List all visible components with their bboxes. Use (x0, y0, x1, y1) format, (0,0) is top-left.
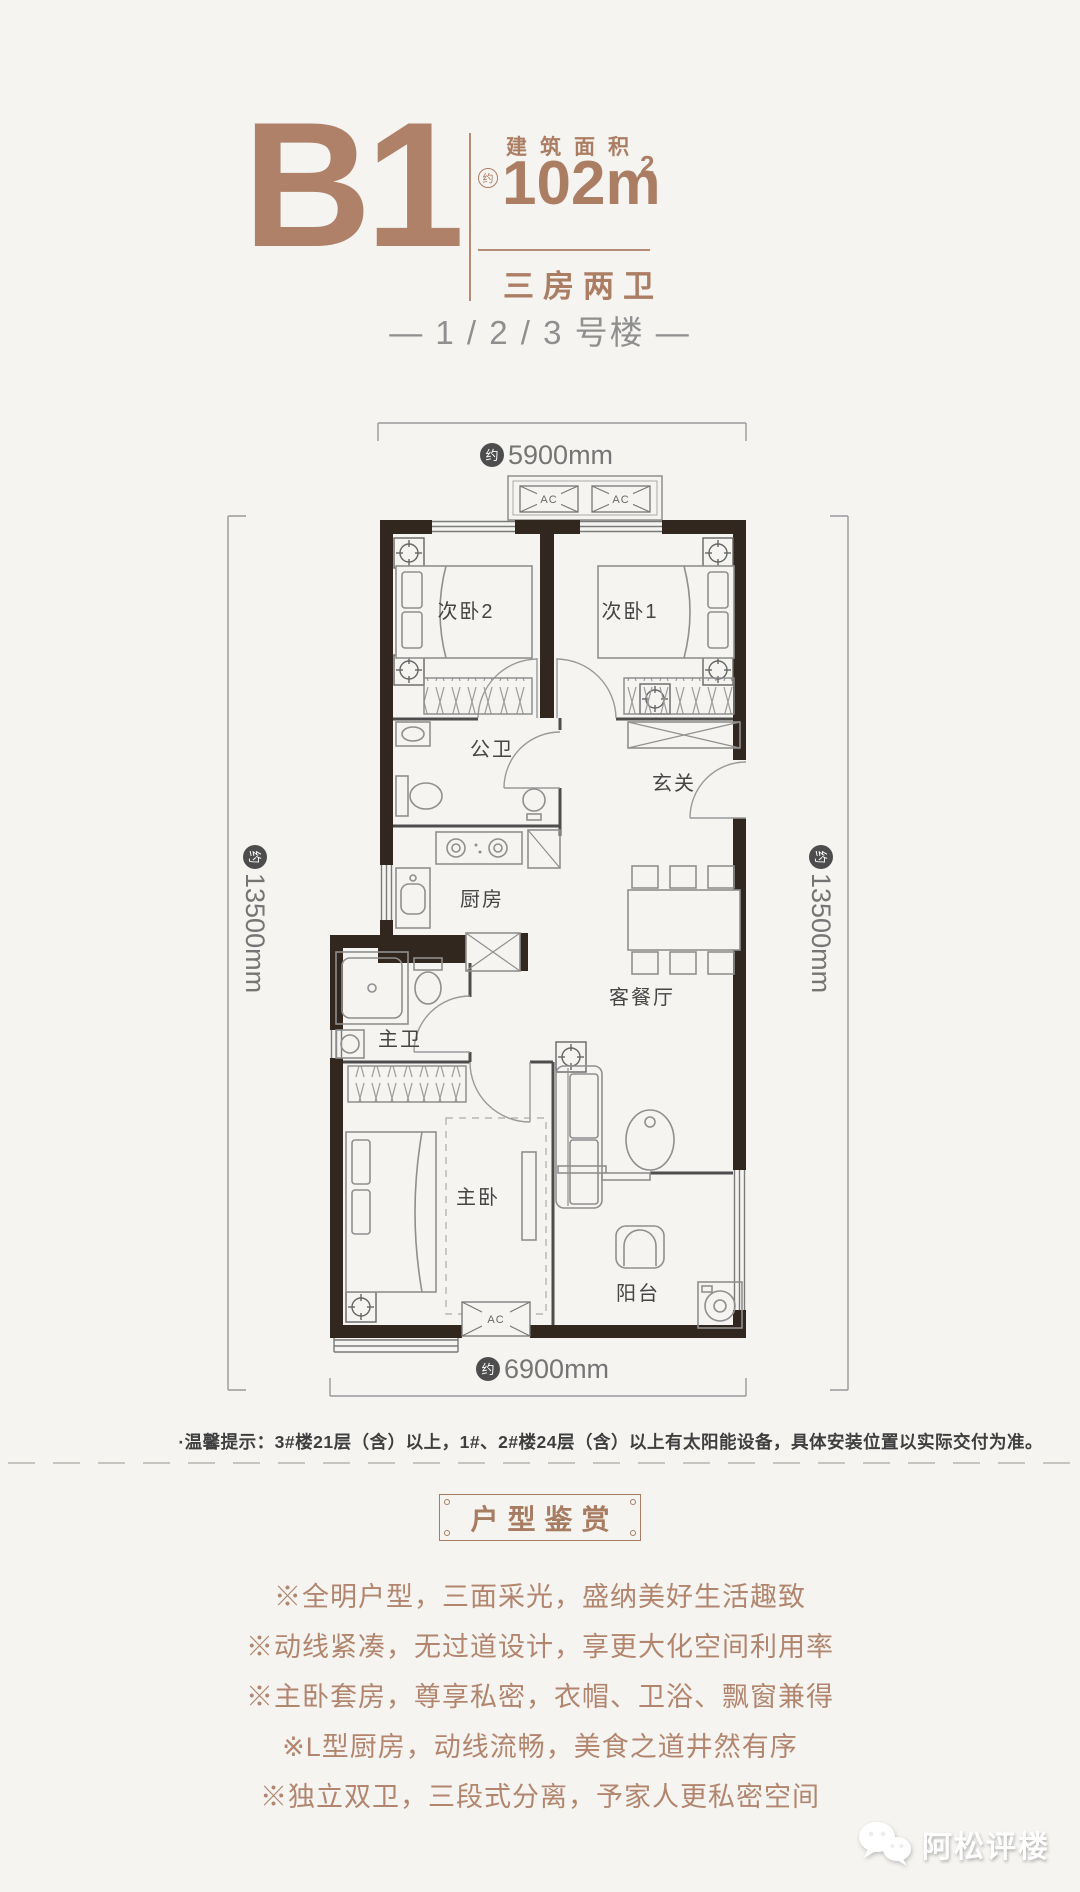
room-label-entry: 玄关 (652, 772, 696, 795)
corner-dot-icon (444, 1499, 450, 1505)
solar-equipment-note: ·温馨提示：3#楼21层（含）以上，1#、2#楼24层（含）以上有太阳能设备，具… (0, 1429, 1043, 1454)
room-label-master-bedroom: 主卧 (456, 1186, 500, 1209)
ac-unit-label: AC (540, 494, 557, 506)
approx-mark: 约 (481, 1362, 494, 1377)
room-label-balcony: 阳台 (616, 1282, 660, 1305)
dimension-left: 约 13500mm (240, 845, 270, 993)
room-label-public-bath: 公卫 (470, 739, 514, 761)
ac-platform-top: AC AC (508, 476, 662, 520)
feature-item: ※独立双卫，三段式分离，予家人更私密空间 (0, 1772, 1080, 1822)
dim-right-value: 13500mm (806, 873, 836, 993)
feature-item: ※动线紧凑，无过道设计，享更大化空间利用率 (0, 1622, 1080, 1672)
corner-dot-icon (630, 1530, 636, 1536)
dimension-lines (228, 423, 848, 1396)
dimension-bottom: 约 6900mm (476, 1354, 609, 1384)
room-label-bedroom2: 次卧2 (437, 600, 494, 623)
feature-list: ※全明户型，三面采光，盛纳美好生活趣致 ※动线紧凑，无过道设计，享更大化空间利用… (0, 1572, 1080, 1822)
room-label-bedroom1: 次卧1 (601, 600, 658, 623)
dim-bottom-value: 6900mm (504, 1354, 609, 1384)
floorplan-page: B1 建筑面积 约 102m 2 三房两卫 — 1 / 2 / 3 号楼 — (0, 0, 1080, 1892)
section-title-box: 户型鉴赏 (439, 1494, 641, 1541)
feature-item: ※主卧套房，尊享私密，衣帽、卫浴、飘窗兼得 (0, 1672, 1080, 1722)
room-label-kitchen: 厨房 (460, 888, 504, 911)
wechat-icon (856, 1820, 914, 1868)
room-label-master-bath: 主卫 (378, 1028, 422, 1051)
dim-top-value: 5900mm (508, 440, 613, 470)
approx-mark: 约 (247, 850, 262, 863)
feature-item: ※L型厨房，动线流畅，美食之道井然有序 (0, 1722, 1080, 1772)
approx-mark: 约 (485, 448, 498, 463)
dimension-right: 约 13500mm (806, 845, 836, 993)
feature-item: ※全明户型，三面采光，盛纳美好生活趣致 (0, 1572, 1080, 1622)
ac-box-bottom: AC (462, 1302, 530, 1336)
ac-unit-label: AC (487, 1314, 504, 1326)
watermark: 阿松评楼 (856, 1820, 1050, 1868)
room-label-living-dining: 客餐厅 (609, 986, 675, 1009)
corner-dot-icon (444, 1530, 450, 1536)
dimension-top: 约 5900mm (480, 440, 613, 470)
ac-unit-label: AC (612, 494, 629, 506)
corner-dot-icon (630, 1499, 636, 1505)
dim-left-value: 13500mm (240, 873, 270, 993)
approx-mark: 约 (813, 850, 828, 863)
section-title: 户型鉴赏 (470, 1498, 618, 1538)
dashed-divider (8, 1462, 1072, 1464)
watermark-text: 阿松评楼 (922, 1822, 1050, 1866)
